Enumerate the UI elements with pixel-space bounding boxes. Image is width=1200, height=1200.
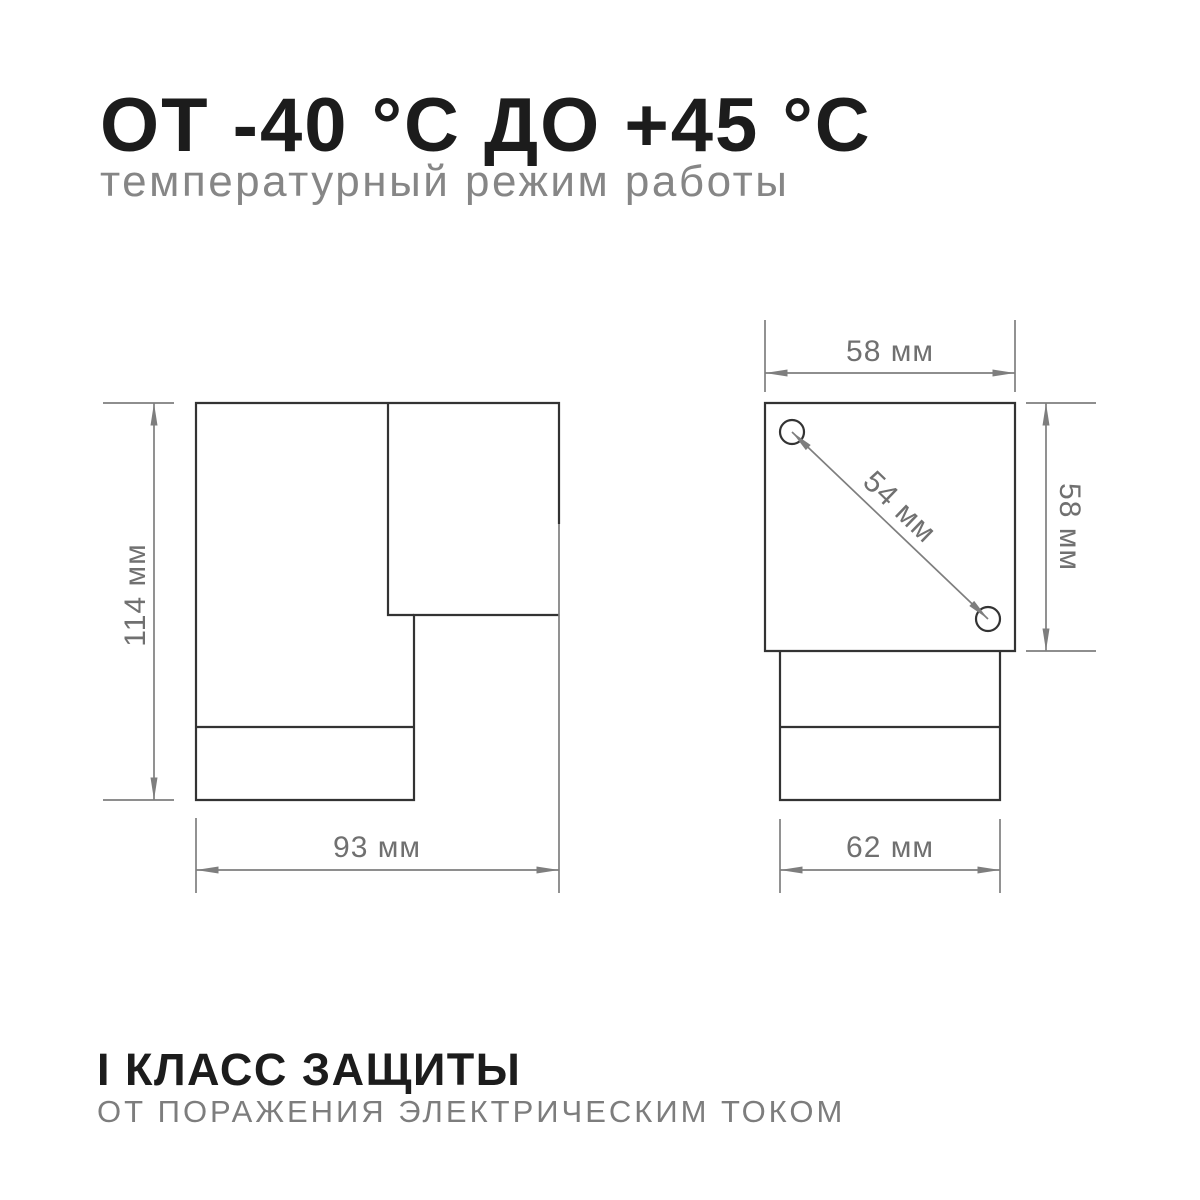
side-head-divider-line — [388, 403, 414, 615]
product-infographic: ОТ -40 °С ДО +45 °С температурный режим … — [0, 0, 1200, 1200]
front-view-drawing: 58 мм 58 мм 54 мм 62 мм — [765, 320, 1096, 893]
side-height-dimension-label: 114 мм — [119, 543, 152, 646]
protection-class-subtitle: ОТ ПОРАЖЕНИЯ ЭЛЕКТРИЧЕСКИМ ТОКОМ — [97, 1093, 845, 1130]
protection-class-title: I КЛАСС ЗАЩИТЫ — [97, 1043, 521, 1097]
front-body-outline — [780, 651, 1000, 800]
side-view-drawing: 114 мм 93 мм — [103, 403, 559, 893]
base-width-dimension-label: 62 мм — [846, 831, 934, 864]
technical-drawings: 114 мм 93 мм 58 мм 58 мм — [0, 0, 1200, 1200]
front-height-dimension-label: 58 мм — [1053, 483, 1086, 571]
screw-distance-dimension-line — [792, 432, 988, 619]
screw-distance-dimension-label: 54 мм — [856, 465, 942, 550]
side-width-dimension-label: 93 мм — [333, 831, 421, 864]
front-width-dimension-label: 58 мм — [846, 335, 934, 368]
side-body-outline — [196, 403, 559, 800]
